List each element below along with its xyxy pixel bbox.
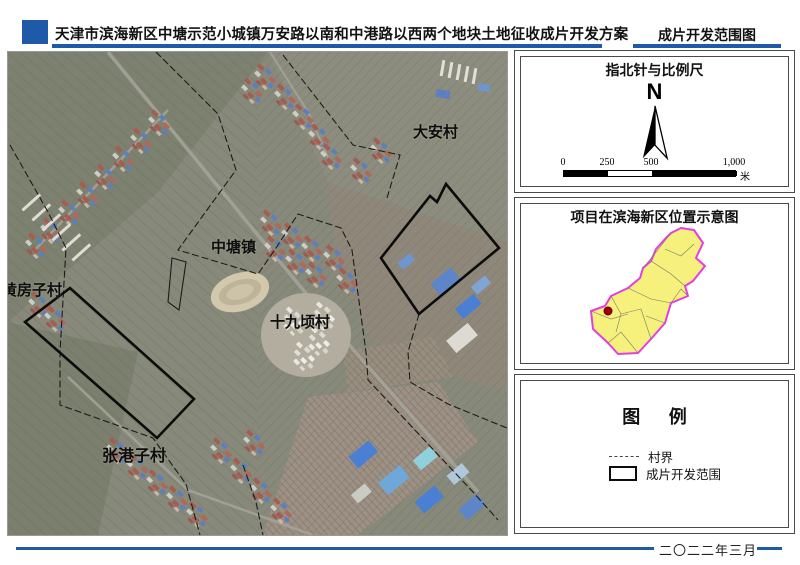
header-rule-left xyxy=(52,44,602,48)
north-arrow-icon xyxy=(637,104,673,162)
footer-rule-left xyxy=(16,547,654,550)
dashed-line-symbol xyxy=(609,456,639,457)
scale-segment-3 xyxy=(652,171,737,176)
legend-item-label: 成片开发范围 xyxy=(646,464,721,483)
location-map xyxy=(521,204,788,363)
scale-bar: 0 250 500 1,000 米 xyxy=(563,157,763,185)
scale-tick-0: 0 xyxy=(561,157,566,168)
sheet-title: 成片开发范围图 xyxy=(633,25,781,45)
map-label-daancun: 大安村 xyxy=(413,121,458,142)
location-panel-frame: 项目在滨海新区位置示意图 xyxy=(520,203,789,364)
location-panel: 项目在滨海新区位置示意图 xyxy=(514,197,795,370)
compass-panel: 指北针与比例尺 N 0 250 500 1,000 米 xyxy=(514,50,795,193)
scale-bar-track xyxy=(563,170,736,177)
header-rule-right xyxy=(633,44,781,48)
legend-panel-frame: 图 例 村界 成片开发范围 xyxy=(520,380,789,528)
footer-rule-right xyxy=(757,547,782,550)
map-label-shijiuqingcun: 十九顷村 xyxy=(270,311,330,332)
footer-date: 二〇二二年三月 xyxy=(659,540,757,559)
compass-panel-frame: 指北针与比例尺 N 0 250 500 1,000 米 xyxy=(520,56,789,187)
compass-panel-title: 指北针与比例尺 xyxy=(521,60,788,80)
legend-title: 图 例 xyxy=(521,403,788,429)
rectangle-outline-symbol xyxy=(609,466,637,481)
map-label-zhongtangzhen: 中塘镇 xyxy=(211,236,256,257)
scale-unit: 米 xyxy=(740,168,750,183)
scale-segment-1 xyxy=(564,171,608,176)
scale-tick-1000: 1,000 xyxy=(723,157,746,168)
map-label-huangfangzicun: 黄房子村 xyxy=(8,279,62,300)
scale-tick-500: 500 xyxy=(644,157,659,168)
page-title: 天津市滨海新区中塘示范小城镇万安路以南和中港路以西两个地块土地征收成片开发方案 xyxy=(55,23,628,44)
scale-tick-250: 250 xyxy=(600,157,615,168)
project-location-marker xyxy=(604,307,612,315)
map-label-zhanggangzicun: 张港子村 xyxy=(102,442,166,466)
north-label: N xyxy=(647,79,663,105)
scale-segment-2 xyxy=(608,171,652,176)
satellite-map: 大安村 中塘镇 黄房子村 十九顷村 张港子村 xyxy=(8,52,507,535)
residential-area xyxy=(261,293,351,377)
legend-panel: 图 例 村界 成片开发范围 xyxy=(514,374,795,534)
header-accent-square xyxy=(22,20,48,44)
legend-item-development-area: 成片开发范围 xyxy=(609,464,721,483)
binhai-region-shape xyxy=(591,228,705,354)
